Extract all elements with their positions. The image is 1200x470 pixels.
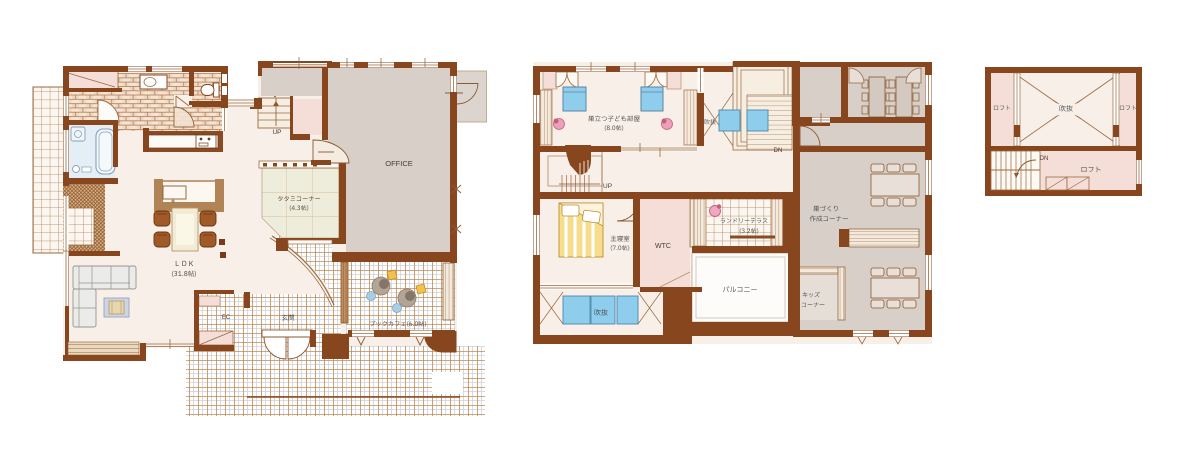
svg-text:OFFICE: OFFICE [385, 159, 413, 168]
svg-text:EC: EC [222, 315, 231, 321]
svg-text:DN: DN [1040, 156, 1049, 162]
svg-text:UP: UP [272, 129, 281, 136]
svg-text:WTC: WTC [655, 243, 671, 250]
svg-text:UP: UP [603, 183, 612, 190]
svg-text:DN: DN [774, 148, 783, 154]
